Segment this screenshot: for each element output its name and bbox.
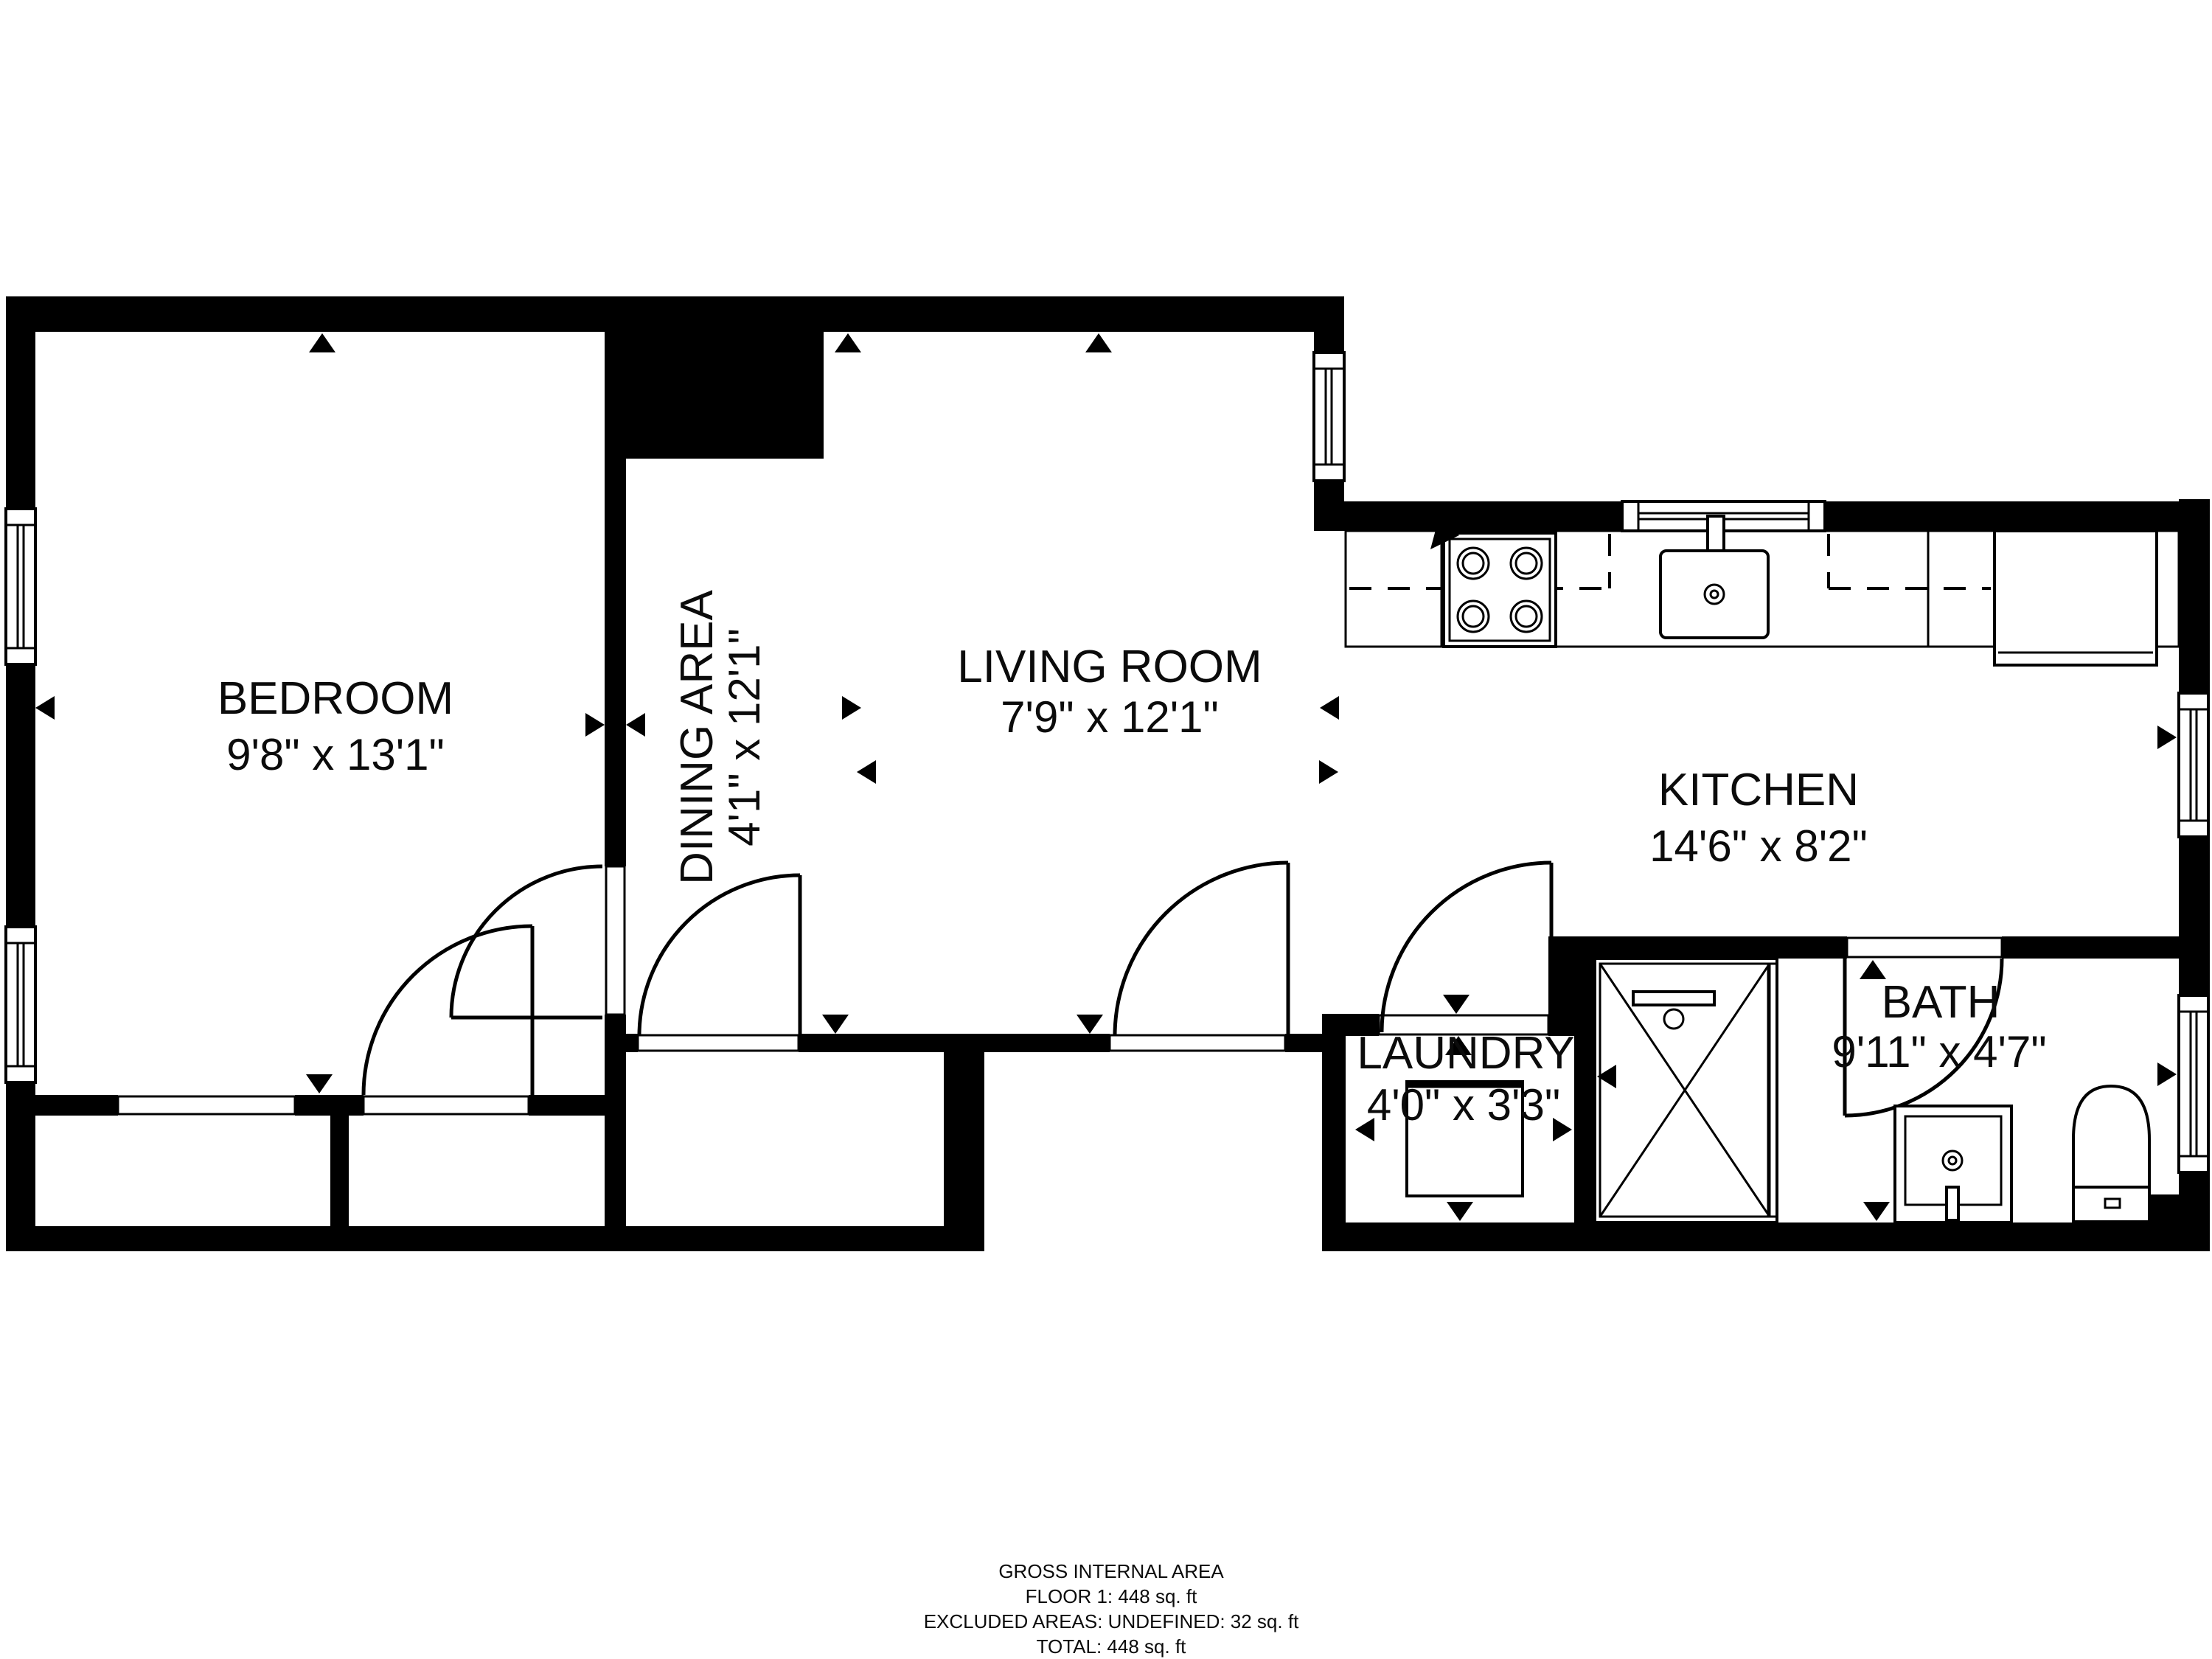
- dining-label: DINING AREA: [672, 590, 723, 885]
- living-label: LIVING ROOM: [957, 641, 1262, 692]
- area-summary: GROSS INTERNAL AREA FLOOR 1: 448 sq. ft …: [924, 1560, 1299, 1658]
- wall-bedroom-bottom-left: [35, 1095, 118, 1116]
- kitchen-dims: 14'6" x 8'2": [1649, 821, 1868, 871]
- wall-bath-top-2: [2002, 936, 2179, 959]
- bath-sink-icon: [1895, 1106, 2011, 1222]
- shower-head-icon: [1633, 992, 1714, 1005]
- footer-line-3: EXCLUDED AREAS: UNDEFINED: 32 sq. ft: [924, 1610, 1299, 1632]
- bath-dims: 9'11" x 4'7": [1832, 1027, 2046, 1077]
- wall-corner-step: [2151, 1194, 2210, 1226]
- arrow-right-divider-icon: [585, 713, 605, 737]
- door-dining-closet: [639, 875, 800, 1036]
- footer-line-4: TOTAL: 448 sq. ft: [1037, 1635, 1187, 1658]
- opening-living-door: [1110, 1035, 1285, 1051]
- arrow-right-kitchen-icon: [2157, 726, 2177, 749]
- arrow-down-laundry-icon: [1443, 995, 1470, 1014]
- laundry-dims: 4'0" x 3'3": [1367, 1080, 1560, 1130]
- dining-dims: 4'1" x 12'1": [720, 628, 769, 846]
- floor-plan-page: BEDROOM 9'8" x 13'1" DINING AREA 4'1" x …: [0, 0, 2212, 1659]
- wall-bath-top-1: [1574, 936, 1847, 959]
- arrow-right-bath-icon: [2157, 1062, 2177, 1086]
- kitchen-label: KITCHEN: [1658, 765, 1859, 815]
- kitchen-sink-icon: [1660, 516, 1768, 638]
- door-divider: [451, 866, 602, 1018]
- living-dims: 7'9" x 12'1": [1001, 692, 1219, 742]
- wall-laundry-left: [1322, 1014, 1346, 1222]
- bedroom-label: BEDROOM: [218, 673, 453, 724]
- wall-top: [6, 296, 1344, 332]
- arrow-down-laundry2-icon: [1447, 1202, 1473, 1221]
- wall-notch-right: [944, 1052, 984, 1251]
- bath-fixtures: [1595, 959, 2149, 1222]
- arrow-down-bathsink-icon: [1863, 1202, 1890, 1221]
- window-kitchen-right-icon: [2179, 693, 2208, 837]
- wall-bedroom-bottom-right: [529, 1095, 605, 1116]
- arrow-up-bedroom-icon: [309, 333, 335, 352]
- opening-bath-door: [1847, 938, 2002, 957]
- toilet-icon: [2073, 1086, 2149, 1222]
- wall-bedroom-bottom-mid: [295, 1095, 364, 1116]
- arrow-down-bedroom-icon: [306, 1074, 333, 1093]
- door-laundry: [1382, 863, 1551, 1032]
- opening-divider-door: [606, 866, 625, 1015]
- window-bath-right-icon: [2179, 995, 2208, 1172]
- window-bedroom-lower-icon: [6, 927, 35, 1082]
- window-bedroom-upper-icon: [6, 509, 35, 664]
- floor-plan-drawing: BEDROOM 9'8" x 13'1" DINING AREA 4'1" x …: [0, 0, 2212, 1659]
- arrow-down-living1-icon: [822, 1015, 849, 1034]
- wall-living-bottom-2: [1285, 1034, 1322, 1052]
- wall-step-block: [605, 332, 824, 459]
- opening-bedroom-closet: [118, 1096, 295, 1114]
- arrow-right-passage-icon: [1319, 760, 1338, 784]
- laundry-label: LAUNDRY: [1357, 1028, 1574, 1079]
- arrow-up-living-icon: [835, 333, 861, 352]
- opening-dining-closet: [638, 1035, 799, 1051]
- bath-label: BATH: [1882, 977, 2000, 1028]
- arrow-left-passage-icon: [1320, 696, 1339, 720]
- wall-left: [6, 296, 35, 1251]
- footer-line-1: GROSS INTERNAL AREA: [998, 1560, 1224, 1582]
- arrow-left-bedroom-icon: [35, 696, 55, 720]
- fridge-icon: [1994, 531, 2157, 665]
- arrow-right-living-icon: [842, 696, 861, 720]
- wall-bottom-left: [6, 1226, 984, 1251]
- bedroom-dims: 9'8" x 13'1": [226, 730, 445, 779]
- footer-line-2: FLOOR 1: 448 sq. ft: [1026, 1585, 1197, 1607]
- wall-living-bottom-1: [799, 1034, 1110, 1052]
- arrow-up-living2-icon: [1085, 333, 1112, 352]
- wall-bottom-right: [1322, 1222, 2210, 1251]
- door-living: [1115, 863, 1288, 1036]
- shower-icon: [1595, 959, 1777, 1222]
- kitchen-fixtures: [1346, 516, 2179, 665]
- window-living-jog-icon: [1314, 352, 1344, 481]
- opening-bedroom-door: [364, 1096, 529, 1114]
- wall-bedroom-divider-upper: [605, 459, 626, 866]
- arrow-left-living-icon: [857, 760, 876, 784]
- arrow-down-living2-icon: [1077, 1015, 1103, 1034]
- stove-icon: [1430, 519, 1556, 647]
- wall-closet-partition: [330, 1116, 349, 1230]
- door-bedroom: [364, 926, 532, 1095]
- wall-dining-bottom-stub: [622, 1034, 638, 1052]
- arrow-left-divider-icon: [626, 713, 645, 737]
- wall-laundry-right: [1574, 1036, 1595, 1222]
